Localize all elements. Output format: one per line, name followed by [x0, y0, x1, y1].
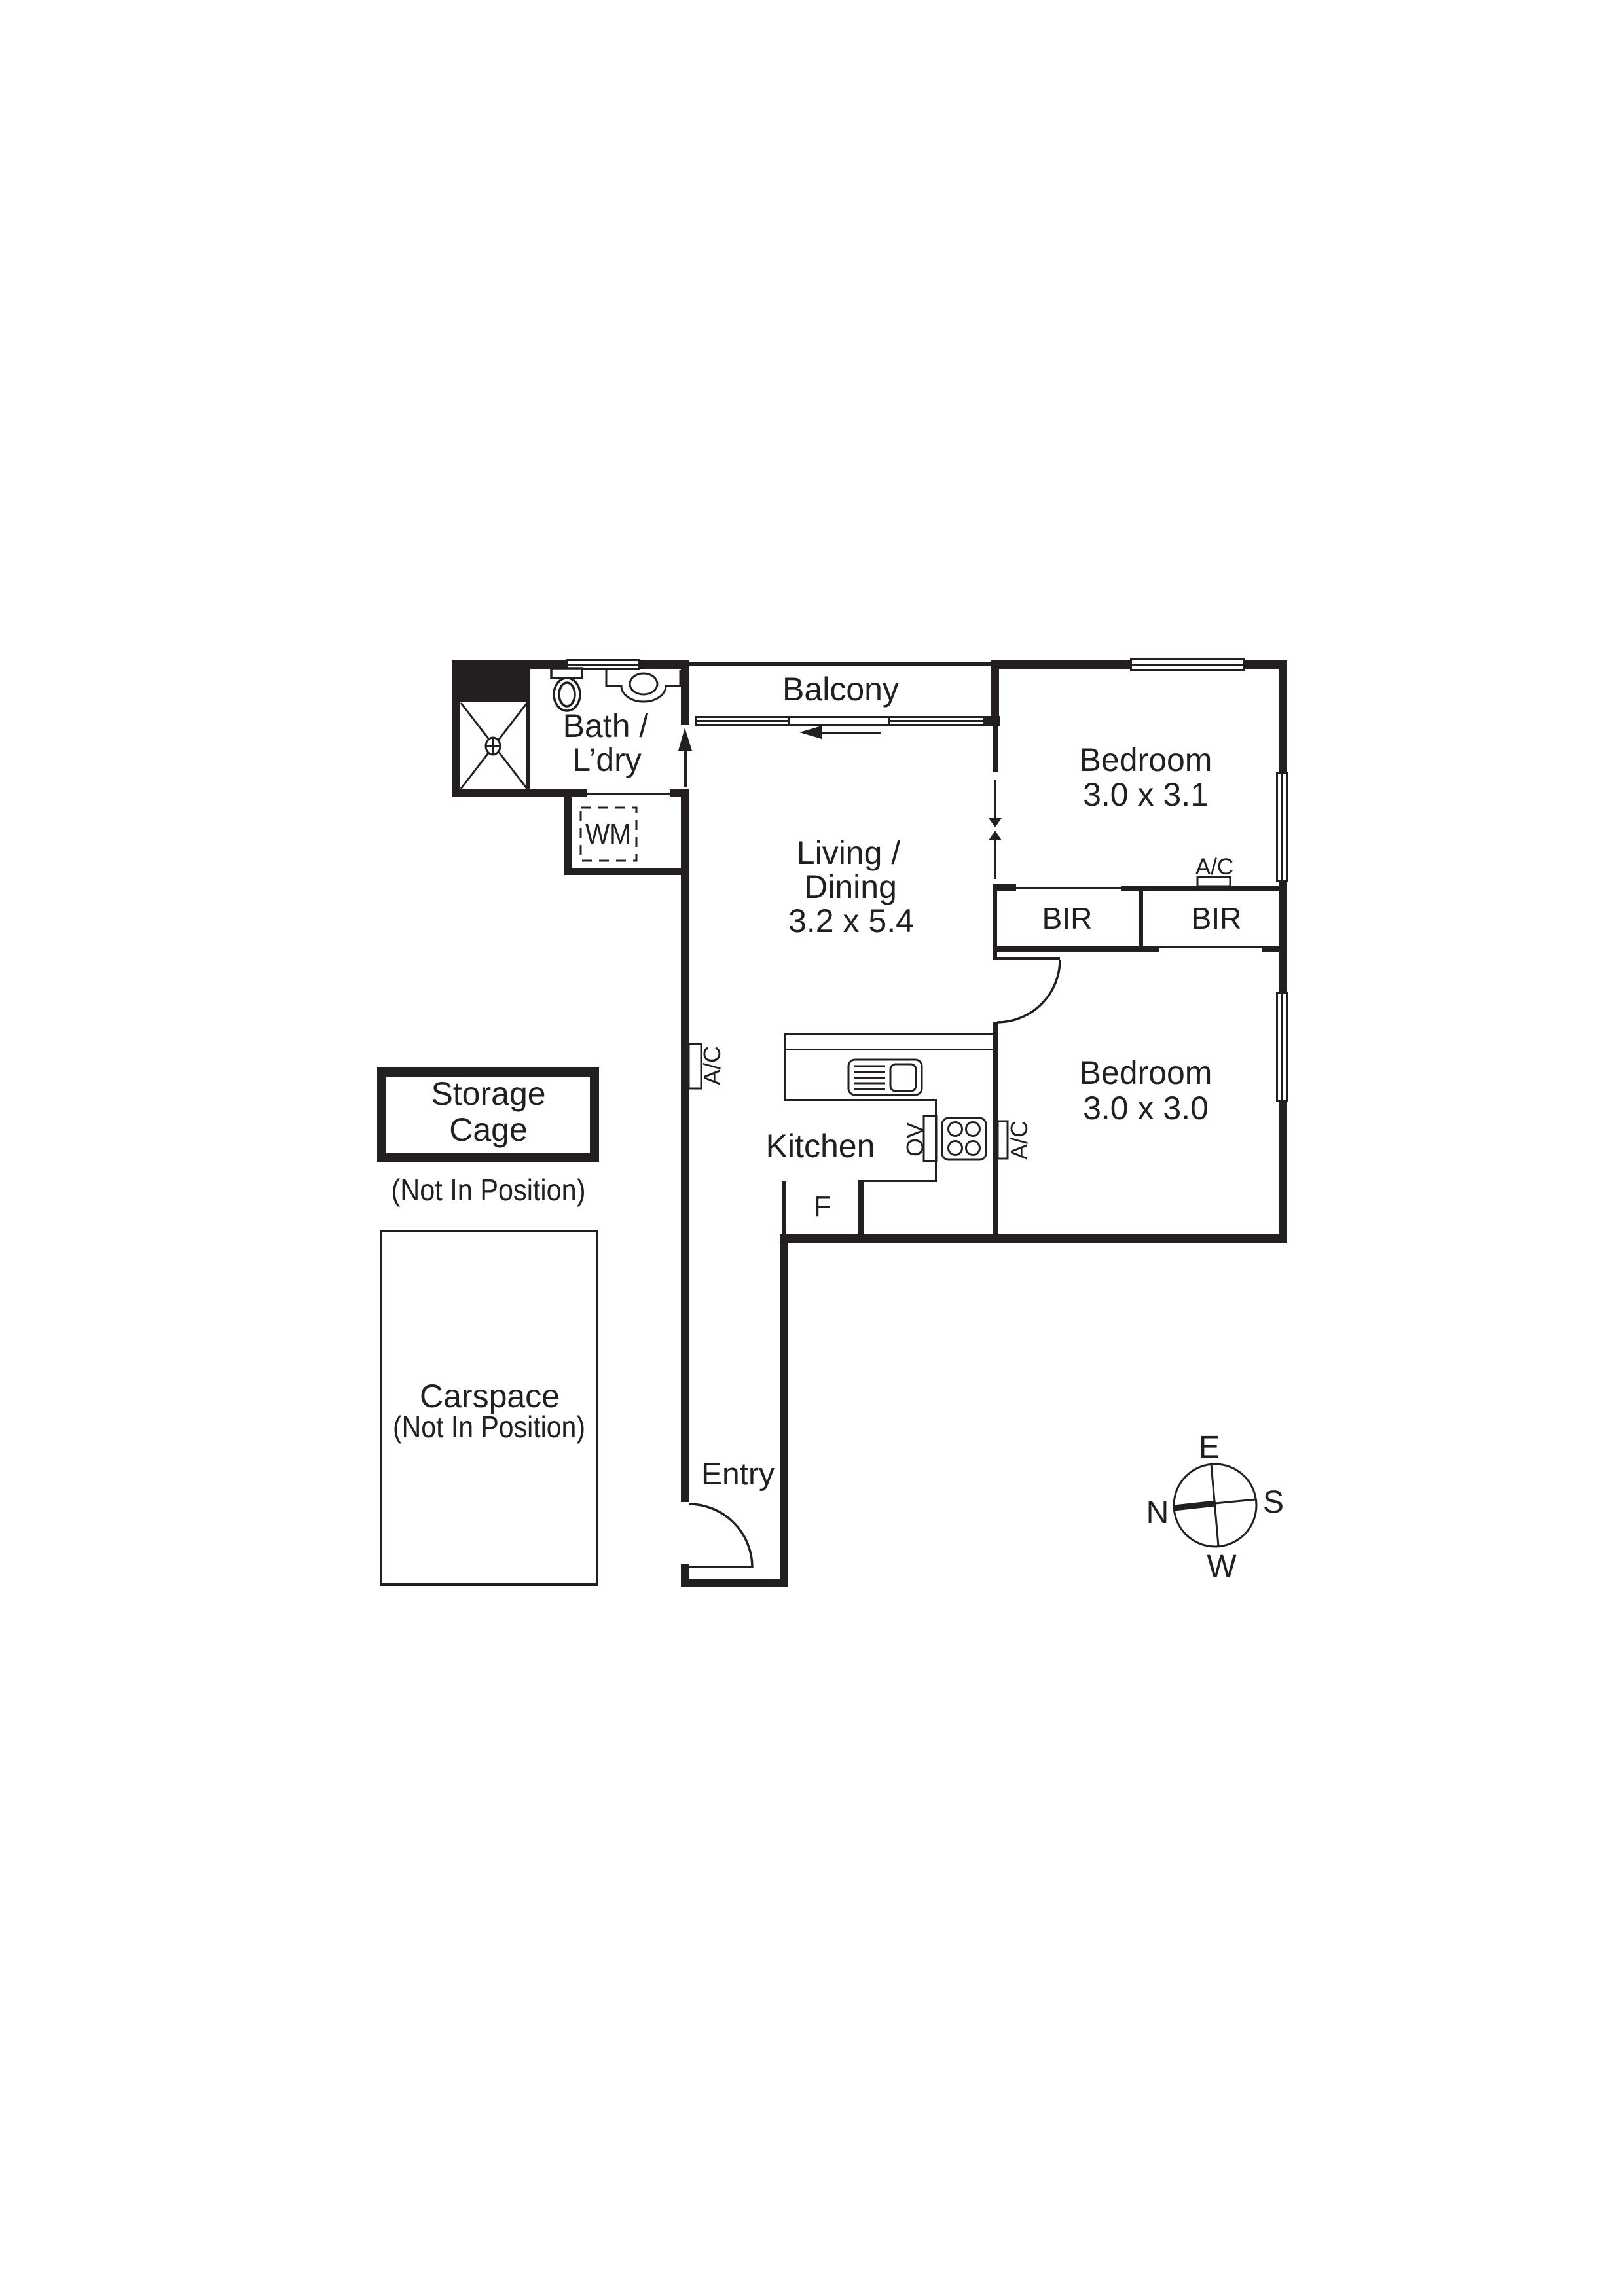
svg-text:E: E [1199, 1430, 1220, 1465]
svg-text:A/C: A/C [699, 1046, 725, 1085]
svg-text:Balcony: Balcony [782, 671, 899, 708]
svg-text:F: F [814, 1191, 831, 1223]
svg-text:A/C: A/C [1195, 854, 1233, 880]
svg-text:(Not In Position): (Not In Position) [393, 1410, 585, 1444]
svg-text:Living /: Living / [797, 834, 901, 871]
svg-text:(Not In Position): (Not In Position) [392, 1173, 586, 1207]
svg-text:Storage: Storage [431, 1075, 545, 1112]
svg-text:3.2 x 5.4: 3.2 x 5.4 [788, 903, 914, 939]
svg-text:Carspace: Carspace [420, 1378, 560, 1414]
svg-text:Bedroom: Bedroom [1080, 742, 1213, 778]
svg-text:Cage: Cage [449, 1111, 528, 1148]
svg-text:W: W [1207, 1549, 1237, 1584]
svg-text:3.0 x 3.0: 3.0 x 3.0 [1083, 1090, 1209, 1126]
svg-text:Entry: Entry [701, 1456, 775, 1491]
svg-text:BIR: BIR [1192, 901, 1242, 935]
svg-text:WM: WM [585, 818, 631, 850]
svg-text:Bath /: Bath / [563, 708, 649, 744]
svg-text:3.0 x 3.1: 3.0 x 3.1 [1083, 776, 1209, 813]
svg-text:S: S [1263, 1485, 1284, 1520]
svg-text:Dining: Dining [804, 869, 897, 905]
svg-text:L’dry: L’dry [572, 742, 642, 778]
svg-text:OV: OV [902, 1122, 928, 1157]
svg-text:Bedroom: Bedroom [1080, 1054, 1213, 1091]
svg-text:BIR: BIR [1042, 901, 1093, 935]
svg-text:N: N [1146, 1496, 1169, 1530]
svg-text:Kitchen: Kitchen [766, 1128, 875, 1164]
svg-text:A/C: A/C [1006, 1121, 1032, 1160]
